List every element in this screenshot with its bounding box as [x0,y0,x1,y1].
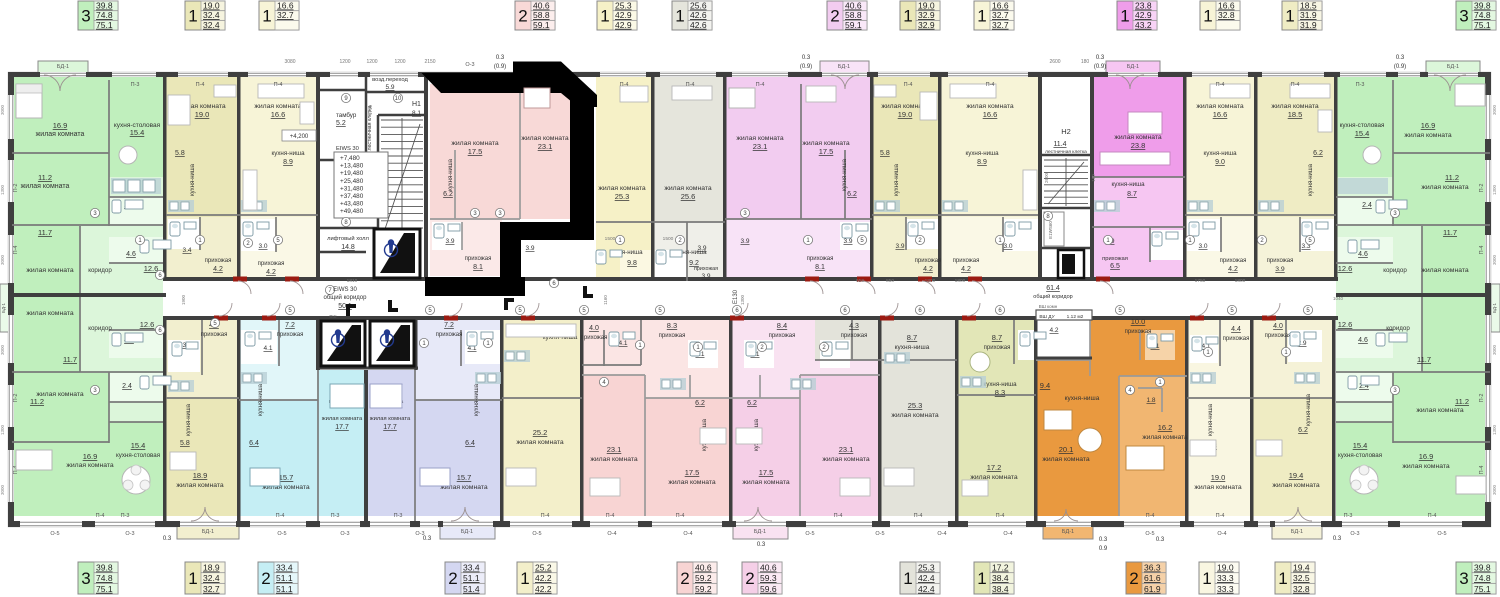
svg-text:8.1: 8.1 [412,110,421,117]
svg-text:19.0: 19.0 [195,110,210,119]
svg-text:0.3: 0.3 [1156,537,1165,543]
svg-text:1800: 1800 [955,278,966,284]
svg-text:П-4: П-4 [1146,513,1155,519]
svg-text:1200: 1200 [366,59,377,65]
svg-text:33.4: 33.4 [463,563,480,573]
svg-text:16.6: 16.6 [1218,1,1235,11]
svg-text:9.8: 9.8 [627,260,637,267]
svg-text:15.4: 15.4 [131,441,146,450]
svg-text:4.6: 4.6 [1358,251,1368,258]
svg-text:3.9: 3.9 [843,238,852,245]
svg-text:О-5: О-5 [875,531,884,537]
svg-text:4.6: 4.6 [126,251,136,258]
svg-text:0.3: 0.3 [1333,536,1342,542]
svg-text:4.0: 4.0 [589,325,599,332]
svg-text:3.9: 3.9 [701,273,710,280]
svg-text:11.2: 11.2 [30,397,44,406]
svg-text:1160: 1160 [603,295,608,305]
svg-text:П-2: П-2 [13,184,19,193]
svg-text:жилая комната: жилая комната [891,412,939,419]
svg-text:11.4: 11.4 [1053,141,1066,148]
svg-text:42.9: 42.9 [615,10,632,20]
svg-text:1: 1 [1285,7,1294,26]
svg-text:БД-1: БД-1 [1291,529,1303,535]
svg-text:1: 1 [675,7,684,26]
svg-text:П-4: П-4 [1479,246,1485,255]
svg-text:5.8: 5.8 [175,150,185,157]
svg-text:3000: 3000 [0,484,5,495]
svg-text:П-4: П-4 [1216,82,1225,88]
svg-text:39.8: 39.8 [1474,1,1491,11]
svg-text:жилая комната: жилая комната [668,479,716,486]
svg-text:EIWS 30: EIWS 30 [333,287,357,293]
svg-text:+37,480: +37,480 [340,193,364,200]
svg-text:коридор: коридор [1386,325,1410,332]
svg-text:1.8: 1.8 [1146,397,1155,404]
svg-text:32.4: 32.4 [203,10,220,20]
svg-text:О-4: О-4 [607,531,616,537]
svg-text:О-3: О-3 [340,531,349,537]
svg-text:1300: 1300 [740,294,745,305]
svg-text:5.8: 5.8 [880,150,890,157]
svg-text:16.9: 16.9 [83,452,98,461]
svg-text:850: 850 [886,278,894,284]
svg-text:4.2: 4.2 [1228,266,1238,273]
svg-text:8.9: 8.9 [283,159,293,166]
svg-text:жилая комната: жилая комната [66,462,114,469]
svg-text:ВШ: ВШ [329,314,336,319]
svg-text:25.3: 25.3 [918,563,935,573]
svg-text:кухня-ниша: кухня-ниша [983,381,1017,388]
svg-text:18.9: 18.9 [193,471,208,480]
svg-text:П-4: П-4 [1428,513,1437,519]
svg-text:42.9: 42.9 [1135,10,1152,20]
svg-text:42.2: 42.2 [535,573,552,583]
svg-text:П-3: П-3 [131,82,140,88]
svg-text:жилая комната: жилая комната [802,140,850,147]
svg-text:О-3: О-3 [465,62,474,68]
svg-text:жилая комната: жилая комната [1421,267,1469,274]
svg-text:6.4: 6.4 [249,440,259,447]
svg-text:1: 1 [977,569,986,588]
svg-text:жилая комната: жилая комната [521,135,569,142]
svg-text:1300: 1300 [1492,424,1497,435]
svg-text:3000: 3000 [1492,254,1497,265]
svg-text:жилая комната: жилая комната [370,416,411,422]
svg-text:прихожая: прихожая [807,256,834,262]
svg-text:23.1: 23.1 [753,142,768,151]
svg-text:6.2: 6.2 [847,191,857,198]
svg-text:51.1: 51.1 [276,584,293,594]
svg-text:51.1: 51.1 [276,573,293,583]
svg-text:3: 3 [1459,569,1468,588]
svg-text:0.3: 0.3 [496,55,505,61]
svg-text:2: 2 [830,7,839,26]
svg-text:общий коридор: общий коридор [1033,293,1072,300]
svg-text:11.2: 11.2 [38,173,52,182]
svg-text:БД-1: БД-1 [1062,529,1074,535]
svg-text:1: 1 [1202,569,1211,588]
svg-text:(0.9): (0.9) [494,64,506,70]
svg-text:74.8: 74.8 [1474,573,1491,583]
svg-text:40.6: 40.6 [533,1,550,11]
svg-text:42.2: 42.2 [535,584,552,594]
svg-text:прихожая: прихожая [465,256,492,262]
svg-text:180: 180 [1081,59,1090,65]
svg-text:8.1: 8.1 [815,264,825,271]
svg-text:жилая комната: жилая комната [1114,134,1162,141]
svg-text:2150: 2150 [424,59,435,65]
svg-text:кухня-ниша: кухня-ниша [1065,395,1100,402]
svg-text:О-5: О-5 [1145,531,1154,537]
svg-text:жилая комната: жилая комната [664,185,712,192]
svg-text:П-3: П-3 [331,513,340,519]
svg-text:75.1: 75.1 [96,20,113,30]
svg-text:П-4: П-4 [996,513,1005,519]
svg-text:H1: H1 [412,101,421,108]
svg-text:0.3: 0.3 [1099,537,1108,543]
svg-text:жилая комната: жилая комната [1404,132,1452,139]
svg-text:10: 10 [395,96,402,102]
svg-text:П-4: П-4 [96,513,105,519]
svg-text:4.2: 4.2 [1049,327,1058,334]
svg-text:39.8: 39.8 [96,563,113,573]
svg-text:59.2: 59.2 [695,584,712,594]
svg-text:БД-1: БД-1 [1,303,6,313]
svg-text:19.0: 19.0 [1211,473,1226,482]
svg-text:75.1: 75.1 [96,584,113,594]
svg-text:кухня-ниша: кухня-ниша [965,150,999,157]
svg-text:+7,480: +7,480 [340,155,360,162]
svg-text:жилая комната: жилая комната [322,416,363,422]
svg-text:38.4: 38.4 [992,584,1009,594]
svg-text:тамбур: тамбур [336,112,357,119]
svg-text:74.8: 74.8 [96,10,113,20]
svg-text:5.8: 5.8 [180,440,190,447]
svg-text:П-4: П-4 [1216,513,1225,519]
svg-text:8.7: 8.7 [1127,191,1137,198]
svg-text:180: 180 [1091,174,1096,182]
svg-text:2: 2 [448,569,457,588]
svg-text:74.8: 74.8 [96,573,113,583]
svg-text:прихожая: прихожая [205,258,232,264]
svg-text:1: 1 [903,7,912,26]
svg-text:жилая комната: жилая комната [26,267,74,274]
svg-text:59.3: 59.3 [760,573,777,583]
svg-text:БД-1: БД-1 [754,529,766,535]
svg-text:П-4: П-4 [986,82,995,88]
svg-text:36.3: 36.3 [1144,563,1161,573]
svg-text:5.9: 5.9 [385,84,394,91]
svg-text:П-2: П-2 [1479,184,1485,193]
svg-text:жилая комната: жилая комната [736,135,784,142]
svg-text:2.4: 2.4 [122,383,132,390]
svg-text:П-4: П-4 [274,82,283,88]
svg-text:жилая комната: жилая комната [598,185,646,192]
svg-text:19.0: 19.0 [1217,563,1234,573]
svg-text:16.6: 16.6 [271,110,286,119]
svg-text:прихожая: прихожая [436,332,463,338]
svg-text:жилая комната: жилая комната [1402,463,1450,470]
svg-text:жилая комната: жилая комната [451,140,499,147]
svg-text:8.3: 8.3 [667,321,677,330]
svg-text:8.9: 8.9 [977,159,987,166]
svg-text:жилая комната: жилая комната [36,131,85,138]
svg-text:(0.9): (0.9) [1094,64,1106,70]
svg-text:прихожая: прихожая [258,261,285,267]
svg-text:32.5: 32.5 [1293,573,1310,583]
svg-text:0.3: 0.3 [423,536,432,542]
svg-text:П-4: П-4 [676,513,685,519]
svg-text:БД-1: БД-1 [1492,303,1497,313]
svg-text:О-4: О-4 [683,531,692,537]
svg-text:жилая комната: жилая комната [1196,103,1244,110]
svg-text:16.9: 16.9 [1419,452,1434,461]
svg-text:8.7: 8.7 [992,333,1002,342]
svg-text:1500: 1500 [663,236,674,242]
svg-text:32.4: 32.4 [203,573,220,583]
svg-text:23.1: 23.1 [607,445,622,454]
svg-text:1: 1 [1278,569,1287,588]
svg-text:П-4: П-4 [1479,466,1485,475]
svg-text:жилая комната: жилая комната [516,439,564,446]
svg-text:19.0: 19.0 [898,110,913,119]
svg-text:БД-1: БД-1 [57,64,69,70]
svg-text:2600: 2600 [1044,172,1049,183]
svg-text:32.8: 32.8 [1293,584,1310,594]
svg-text:38.4: 38.4 [992,573,1009,583]
svg-text:51.1: 51.1 [463,573,480,583]
svg-text:32.8: 32.8 [1218,10,1235,20]
svg-text:П-2: П-2 [1479,394,1485,403]
svg-text:59.2: 59.2 [695,573,712,583]
svg-text:16.6: 16.6 [983,110,998,119]
svg-text:прихожая: прихожая [1265,333,1292,339]
svg-text:О-4: О-4 [937,531,946,537]
svg-text:6.4: 6.4 [465,440,475,447]
svg-text:прихожая: прихожая [277,332,304,338]
svg-text:6.2: 6.2 [1298,427,1308,434]
svg-text:П-4: П-4 [276,513,285,519]
svg-text:4.6: 4.6 [1358,337,1368,344]
svg-text:жилая комната: жилая комната [254,103,302,110]
svg-text:19.4: 19.4 [1293,563,1310,573]
svg-text:17.5: 17.5 [759,468,774,477]
svg-text:25.3: 25.3 [908,401,923,410]
svg-text:1: 1 [262,7,271,26]
svg-text:жилая комната: жилая комната [36,391,84,398]
svg-text:32.7: 32.7 [992,20,1009,30]
svg-text:0.9: 0.9 [1099,546,1108,552]
svg-text:1800: 1800 [925,278,936,284]
svg-text:12.6: 12.6 [140,320,155,329]
svg-text:1300: 1300 [0,424,5,435]
svg-text:П-4: П-4 [834,513,843,519]
svg-text:3000: 3000 [1492,344,1497,355]
svg-text:4.2: 4.2 [923,266,933,273]
svg-text:3.0: 3.0 [1003,243,1012,250]
svg-text:3: 3 [81,569,90,588]
svg-text:59.6: 59.6 [760,584,777,594]
svg-text:кухня-ниша: кухня-ниша [1111,181,1145,188]
svg-text:18.5: 18.5 [1288,110,1303,119]
svg-text:11.7: 11.7 [38,228,52,237]
svg-text:18.5: 18.5 [1300,1,1317,11]
svg-text:прихожая: прихожая [694,266,718,272]
svg-text:8.7: 8.7 [907,333,917,342]
svg-text:950: 950 [856,278,864,284]
svg-text:3.9: 3.9 [697,245,706,252]
svg-text:3.0: 3.0 [258,243,267,250]
svg-text:общий коридор: общий коридор [324,294,368,301]
svg-text:ВШ комн: ВШ комн [1039,304,1058,309]
svg-text:П-3: П-3 [1344,513,1353,519]
svg-text:3.4: 3.4 [182,247,191,254]
svg-text:П-4: П-4 [914,513,923,519]
svg-text:жилая комната: жилая комната [1416,407,1464,414]
svg-text:19.0: 19.0 [203,1,220,11]
svg-text:кухня-ниша: кухня-ниша [1208,403,1214,436]
svg-text:1: 1 [1120,7,1129,26]
svg-text:4.2: 4.2 [213,266,223,273]
svg-text:16.9: 16.9 [1421,121,1436,130]
svg-text:жилая комната: жилая комната [1421,184,1469,191]
svg-text:15.7: 15.7 [279,473,294,482]
svg-text:0.3: 0.3 [757,542,766,548]
svg-text:6.2: 6.2 [695,400,705,407]
svg-text:11.7: 11.7 [63,355,77,364]
svg-text:(0.9): (0.9) [800,64,812,70]
svg-text:25.6: 25.6 [690,1,707,11]
svg-text:П-4: П-4 [620,82,629,88]
svg-text:жилая комната: жилая комната [1142,434,1188,441]
svg-text:кухня-ниша: кухня-ниша [1308,163,1314,196]
svg-text:1500: 1500 [605,236,616,242]
svg-text:15.4: 15.4 [130,128,145,137]
svg-text:О-5: О-5 [1437,531,1446,537]
svg-text:9.4: 9.4 [1040,381,1050,390]
svg-text:16.2: 16.2 [1158,423,1173,432]
svg-text:жилая комната: жилая комната [742,479,790,486]
svg-text:БД-1: БД-1 [838,64,850,70]
svg-text:20.1: 20.1 [1059,445,1074,454]
svg-text:75.1: 75.1 [1474,584,1491,594]
svg-text:32.7: 32.7 [203,584,220,594]
svg-text:кухня-ниша: кухня-ниша [842,158,848,191]
svg-text:жилая комната: жилая комната [822,456,870,463]
svg-text:16.6: 16.6 [277,1,294,11]
svg-text:+49,480: +49,480 [340,208,364,215]
svg-text:3: 3 [81,7,90,26]
svg-text:кухня-столовая: кухня-столовая [116,452,160,459]
svg-text:19.4: 19.4 [1289,471,1304,480]
svg-text:+19,480: +19,480 [340,170,364,177]
svg-text:2: 2 [261,569,270,588]
svg-text:1: 1 [977,7,986,26]
svg-text:75.1: 75.1 [1474,20,1491,30]
svg-text:П-4: П-4 [541,513,550,519]
svg-text:жилая комната: жилая комната [176,482,224,489]
svg-text:кухня-столовая: кухня-столовая [1340,122,1385,129]
svg-text:11.7: 11.7 [1417,355,1431,364]
svg-text:жилая комната: жилая комната [1194,484,1242,491]
svg-text:П-4: П-4 [196,82,205,88]
svg-text:кухня-столовая: кухня-столовая [1338,452,1382,459]
svg-text:1810: 1810 [347,278,358,284]
svg-text:23.8: 23.8 [1135,1,1152,11]
svg-text:7.2: 7.2 [285,322,295,329]
svg-text:жилая комната: жилая комната [1272,482,1320,489]
svg-text:17.5: 17.5 [819,147,834,156]
svg-text:18.9: 18.9 [203,563,220,573]
svg-text:+31,480: +31,480 [340,185,364,192]
svg-text:40.6: 40.6 [760,563,777,573]
svg-text:0.3: 0.3 [1096,55,1105,61]
svg-text:15.4: 15.4 [1355,129,1370,138]
svg-text:23.8: 23.8 [1131,141,1146,150]
svg-text:1.12 м2: 1.12 м2 [1067,314,1084,320]
svg-text:П-4: П-4 [904,82,913,88]
svg-text:БД-1: БД-1 [202,529,214,535]
svg-text:25.2: 25.2 [533,428,548,437]
svg-text:32.9: 32.9 [918,20,935,30]
svg-text:39.8: 39.8 [96,1,113,11]
svg-text:П-4: П-4 [686,82,695,88]
svg-text:0.3: 0.3 [802,55,811,61]
svg-text:прихожая: прихожая [581,335,608,341]
svg-text:0.3: 0.3 [163,536,172,542]
svg-text:61.6: 61.6 [1144,573,1161,583]
svg-text:(0.9): (0.9) [1394,64,1406,70]
svg-text:42.4: 42.4 [918,573,935,583]
svg-text:23.1: 23.1 [538,142,553,151]
svg-text:25.3: 25.3 [615,1,632,11]
svg-text:О-5: О-5 [805,531,814,537]
svg-text:12.6: 12.6 [1338,264,1353,273]
svg-text:1: 1 [903,569,912,588]
svg-text:19.0: 19.0 [918,1,935,11]
svg-text:8.1: 8.1 [473,264,483,271]
svg-text:2: 2 [518,7,527,26]
svg-text:17.7: 17.7 [335,424,349,431]
svg-text:17.7: 17.7 [383,424,397,431]
svg-text:кухня-ниша: кухня-ниша [474,383,480,416]
svg-text:БД-1: БД-1 [461,529,473,535]
svg-text:5.2: 5.2 [336,120,346,127]
svg-text:14.8: 14.8 [341,244,355,251]
svg-text:3.9: 3.9 [895,243,904,250]
svg-text:1: 1 [188,569,197,588]
svg-text:лестничная клетка: лестничная клетка [1045,150,1087,155]
svg-text:32.9: 32.9 [918,10,935,20]
svg-text:1750: 1750 [1195,278,1206,284]
svg-text:кухня-ниша: кухня-ниша [894,163,900,196]
svg-text:33.4: 33.4 [276,563,293,573]
svg-text:3000: 3000 [0,104,5,115]
svg-text:П-4: П-4 [13,246,19,255]
svg-text:E130: E130 [733,289,739,304]
svg-text:О-5: О-5 [277,531,286,537]
svg-text:кухня-ниша: кухня-ниша [271,150,305,157]
svg-text:31.9: 31.9 [1300,20,1317,30]
svg-text:61.9: 61.9 [1144,584,1161,594]
svg-text:3000: 3000 [0,344,5,355]
svg-text:59.1: 59.1 [845,20,862,30]
svg-text:42.4: 42.4 [918,584,935,594]
svg-text:42.9: 42.9 [615,20,632,30]
svg-text:3.9: 3.9 [740,238,749,245]
svg-text:жилая комната: жилая комната [1042,456,1090,463]
